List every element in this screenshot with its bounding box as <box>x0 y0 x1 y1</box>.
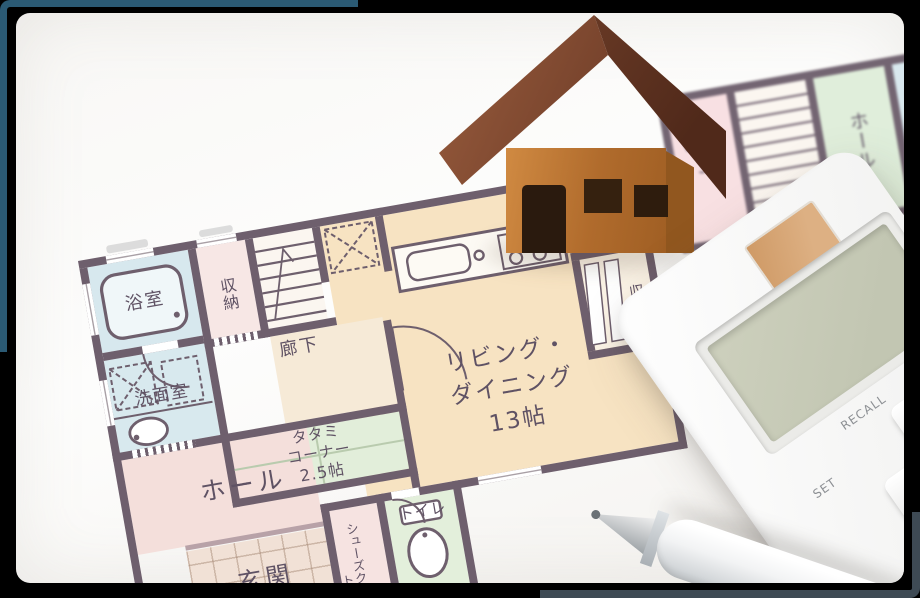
photo-scene: 浴室 収納 洗面室 廊下 タタミ コーナー 2.5帖 リビング・ ダイニング 1… <box>0 0 920 598</box>
window-opening <box>584 179 622 213</box>
house-model <box>436 13 726 278</box>
frame-accent-teal <box>0 0 358 352</box>
window-opening <box>634 185 668 217</box>
house-body-side <box>666 151 694 253</box>
door-opening <box>522 185 566 253</box>
